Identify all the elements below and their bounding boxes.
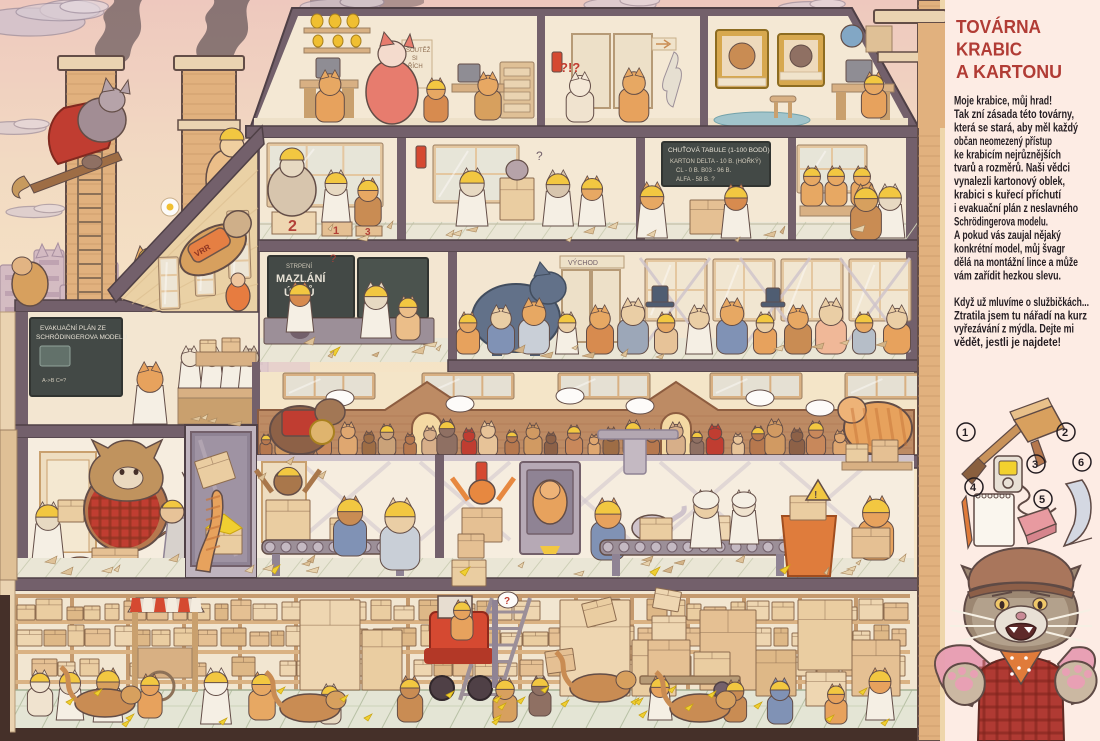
svg-text:Když už mluvíme o službičkách.: Když už mluvíme o službičkách... — [954, 295, 1089, 309]
svg-text:vyřezávání z mýdla. Dejte mi: vyřezávání z mýdla. Dejte mi — [954, 322, 1074, 336]
svg-text:občan neomezený přístup: občan neomezený přístup — [954, 134, 1052, 148]
svg-text:Schrödingerova modelu.: Schrödingerova modelu. — [954, 215, 1048, 229]
svg-text:4: 4 — [970, 482, 977, 494]
svg-text:5: 5 — [1039, 494, 1045, 506]
svg-text:Moje krabice, můj hrad!: Moje krabice, můj hrad! — [954, 94, 1052, 108]
svg-text:KRABIC: KRABIC — [956, 40, 1022, 60]
svg-text:tvarů a rozměrů. Naši vědci: tvarů a rozměrů. Naši vědci — [954, 161, 1070, 175]
svg-text:krabici s kuřecí příchutí: krabici s kuřecí příchutí — [954, 188, 1062, 202]
svg-text:dělá na montážní lince a může: dělá na montážní lince a může — [954, 255, 1078, 269]
svg-text:Tak zní zásada této továrny,: Tak zní zásada této továrny, — [954, 107, 1074, 121]
svg-text:A pokud vás zaujal nějaký: A pokud vás zaujal nějaký — [954, 228, 1061, 242]
svg-text:3: 3 — [1032, 459, 1038, 471]
svg-text:2: 2 — [1062, 427, 1068, 439]
svg-text:vynalezli kartonový oblek,: vynalezli kartonový oblek, — [954, 174, 1065, 188]
svg-text:která se stará, aby měl každý: která se stará, aby měl každý — [954, 120, 1078, 134]
svg-text:Ztratila jsem tu nářadí na kur: Ztratila jsem tu nářadí na kurz — [954, 308, 1087, 322]
svg-text:konkrétní model, můj švagr: konkrétní model, můj švagr — [954, 241, 1065, 255]
svg-text:6: 6 — [1078, 457, 1084, 469]
svg-text:A KARTONU: A KARTONU — [956, 62, 1062, 82]
svg-text:ke krabicím nejrůznějších: ke krabicím nejrůznějších — [954, 147, 1061, 161]
svg-text:vám zařídit hezkou slevu.: vám zařídit hezkou slevu. — [954, 268, 1061, 282]
svg-text:TOVÁRNA: TOVÁRNA — [956, 16, 1041, 37]
svg-text:vědět, jestli je najdete!: vědět, jestli je najdete! — [954, 335, 1061, 349]
svg-text:1: 1 — [962, 427, 968, 439]
svg-text:i evakuační plán z neslavného: i evakuační plán z neslavného — [954, 201, 1078, 215]
